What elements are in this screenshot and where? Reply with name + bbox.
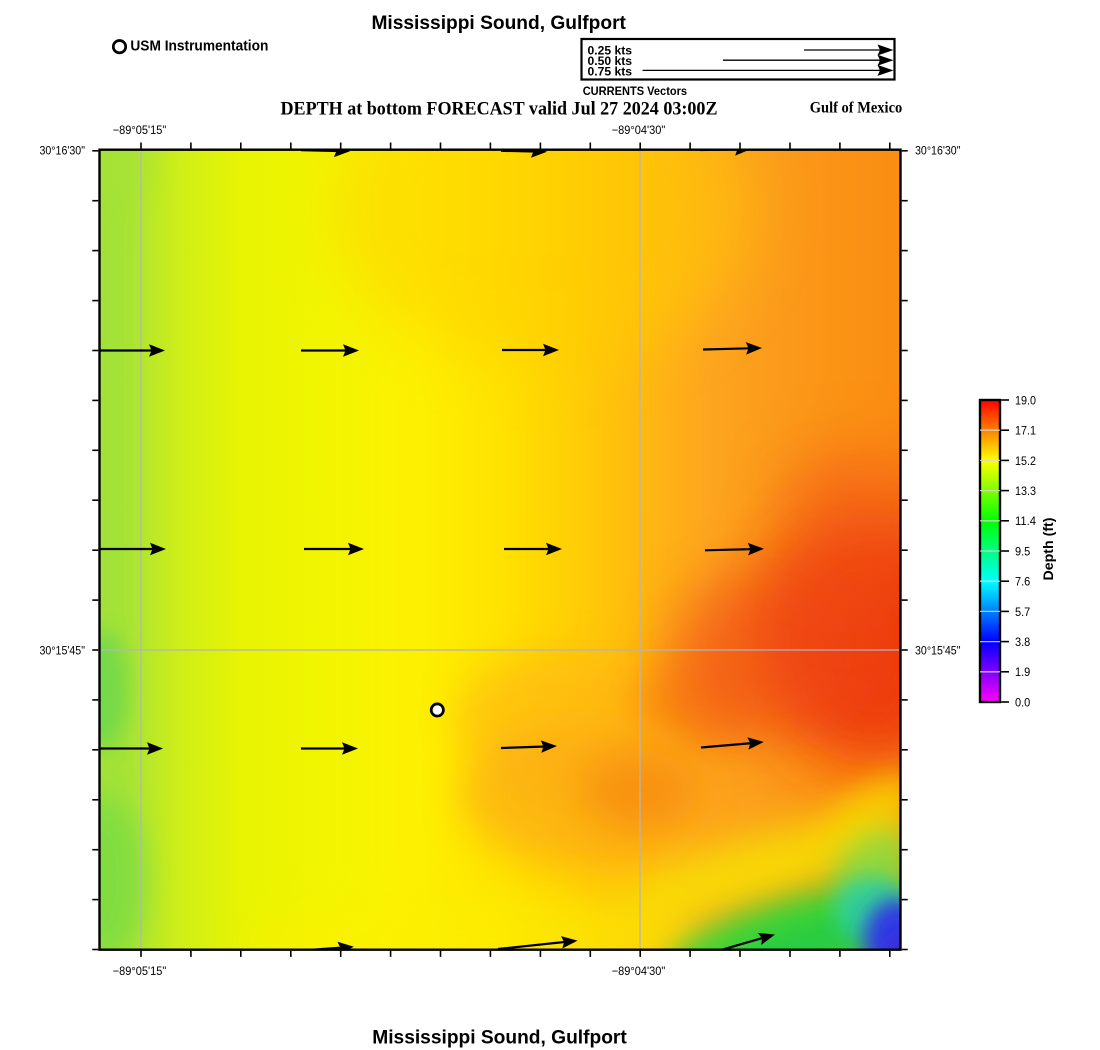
svg-text:−89°04'30": −89°04'30"	[612, 123, 666, 137]
svg-text:1.9: 1.9	[1015, 665, 1031, 679]
svg-text:Mississippi Sound, Gulfport: Mississippi Sound, Gulfport	[372, 1027, 627, 1048]
svg-text:30°15'45": 30°15'45"	[915, 644, 961, 658]
svg-text:9.5: 9.5	[1015, 544, 1031, 558]
svg-text:30°15'45": 30°15'45"	[40, 644, 86, 658]
svg-text:13.3: 13.3	[1015, 484, 1036, 498]
svg-text:7.6: 7.6	[1015, 575, 1031, 589]
svg-text:0.0: 0.0	[1015, 695, 1031, 709]
svg-text:30°16'30": 30°16'30"	[40, 144, 86, 158]
svg-text:15.2: 15.2	[1015, 454, 1036, 468]
svg-text:0.75 kts: 0.75 kts	[588, 65, 633, 79]
svg-text:Depth (ft): Depth (ft)	[1041, 518, 1056, 581]
svg-text:Mississippi Sound, Gulfport: Mississippi Sound, Gulfport	[371, 13, 626, 34]
svg-text:−89°05'15": −89°05'15"	[113, 123, 167, 137]
svg-text:11.4: 11.4	[1015, 514, 1036, 528]
svg-text:−89°05'15": −89°05'15"	[113, 964, 167, 978]
svg-text:Gulf of Mexico: Gulf of Mexico	[810, 100, 903, 117]
svg-text:30°16'30": 30°16'30"	[915, 144, 961, 158]
svg-text:USM Instrumentation: USM Instrumentation	[130, 38, 268, 55]
svg-text:5.7: 5.7	[1015, 605, 1031, 619]
svg-text:DEPTH at bottom FORECAST valid: DEPTH at bottom FORECAST valid Jul 27 20…	[281, 99, 718, 120]
svg-text:CURRENTS Vectors: CURRENTS Vectors	[583, 84, 687, 98]
svg-text:19.0: 19.0	[1015, 393, 1036, 407]
svg-text:17.1: 17.1	[1015, 424, 1036, 438]
svg-text:−89°04'30": −89°04'30"	[612, 964, 666, 978]
svg-text:3.8: 3.8	[1015, 635, 1031, 649]
